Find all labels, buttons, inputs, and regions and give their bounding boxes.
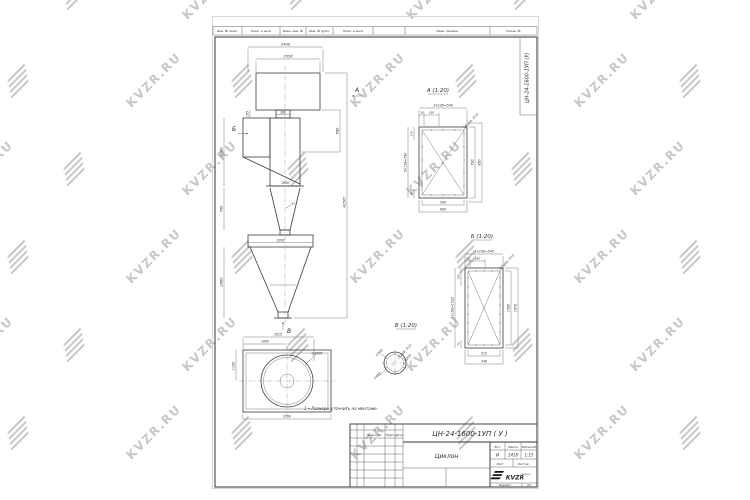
dim-label: 790 xyxy=(471,159,475,165)
dim-label: 2400 xyxy=(281,43,291,47)
dim-label: 1065 xyxy=(261,340,269,344)
tb-name: Циклон xyxy=(435,453,459,460)
front-view: 2400 2056 380 165 2160 700 2060 580 4150… xyxy=(220,43,364,336)
dim-label: 500 xyxy=(440,201,446,205)
dim-label: 4150* xyxy=(343,196,347,207)
dia-callout: ∅335 xyxy=(403,353,412,362)
dim-label: 580 xyxy=(336,127,340,135)
kvzr-watermark-logo-icon xyxy=(679,63,700,98)
tb-mass-h: Масса xyxy=(508,445,518,449)
note-ref: 1* xyxy=(291,202,295,206)
kvzr-watermark-text: KVZR.RU xyxy=(572,402,632,462)
drawing-frame xyxy=(215,37,537,487)
dim-label: 180 xyxy=(429,111,434,115)
strip-cell: Инв. № подл. xyxy=(217,29,238,33)
view-v-title: В (1:20) xyxy=(395,323,417,329)
dim-label: 700 xyxy=(220,205,224,213)
dim-label: 2200 xyxy=(283,415,291,419)
kvzr-watermark-logo-icon xyxy=(63,327,84,362)
section-b-title: Б (1:20) xyxy=(471,234,493,240)
format-label: Формат xyxy=(499,483,511,487)
strip-cell: Перв. примен. xyxy=(436,29,459,33)
kvzr-watermark-logo-icon xyxy=(63,151,84,186)
dia-callout: ∅395 xyxy=(375,348,384,357)
dim-label: 30 xyxy=(420,111,424,115)
view-v: В (1:20) 6 отв. ∅12 ∅395 ∅335 ∅450 xyxy=(373,323,417,380)
dim-label: 380 xyxy=(280,111,286,115)
dim-label: 540 xyxy=(481,360,487,364)
dim-label: 3×180=540 xyxy=(474,250,494,254)
tb-lit-h: Лит. xyxy=(493,445,501,449)
kvzr-watermark-logo-icon xyxy=(7,63,28,98)
tb-sheet: Лист xyxy=(495,462,504,466)
dim-label: 3×180=540 xyxy=(433,104,453,108)
kvzr-watermark-logo-icon xyxy=(679,239,700,274)
kvzr-watermark-text: KVZR.RU xyxy=(628,138,688,198)
kvzr-logo-icon xyxy=(491,471,504,479)
corner-designation: ЦН-24-1600-1УП (У) xyxy=(525,53,531,104)
strip-cell: Взам. инв. № xyxy=(283,29,303,33)
kvzr-watermark-text: KVZR.RU xyxy=(124,402,184,462)
strip-cell: Инв. № дубл. xyxy=(309,29,330,33)
dim-label: 180 xyxy=(475,257,480,261)
dia-callout: ∅1600 xyxy=(312,352,323,356)
tb-scale-v: 1:15 xyxy=(525,453,534,458)
section-mark-a: А xyxy=(354,87,359,94)
dim-label: 512 xyxy=(481,352,487,356)
col-doc: № докум. xyxy=(366,433,382,437)
tb-sheets: Листов xyxy=(516,462,528,466)
col-date: Дата xyxy=(394,433,403,437)
kvzr-site: kvzr.ru xyxy=(522,472,531,476)
dim-label: 850 xyxy=(478,159,482,165)
dim-label: 2200 xyxy=(276,239,284,243)
kvzr-watermark-text: KVZR.RU xyxy=(628,0,688,22)
kvzr-watermark-logo-icon xyxy=(679,415,700,450)
kvzr-watermark-text: KVZR.RU xyxy=(572,226,632,286)
kvzr-watermark-logo-icon xyxy=(7,415,28,450)
kvzr-watermark-logo-icon xyxy=(63,0,84,11)
dim-label: 2056 xyxy=(283,55,293,59)
dim-label: 8×190=1520 xyxy=(451,297,455,319)
dim-label: 30 xyxy=(410,192,414,196)
dim-label: 1100 xyxy=(232,362,236,370)
format-value: А3 xyxy=(526,483,531,487)
title-block: № докум. Подп. Дата ЦН-24-1600-1УП ( У )… xyxy=(350,424,537,487)
tb-designation: ЦН-24-1600-1УП ( У ) xyxy=(432,430,508,438)
kvzr-watermark-text: KVZR.RU xyxy=(0,138,16,198)
dia-callout: ∅450 xyxy=(373,371,382,380)
drawing-note: 1 • Размеры уточнить на монтаже. xyxy=(304,406,378,411)
top-strip: Инв. № подл. Подп. и дата Взам. инв. № И… xyxy=(213,27,537,36)
section-a: А (1:20) 3×180=540 30 180 16 отв. ∅13 5×… xyxy=(404,88,483,212)
holes-note: 16 отв. ∅13 xyxy=(462,112,479,129)
dim-label: 170 xyxy=(410,131,414,136)
tb-scale-h: Масштаб xyxy=(522,445,536,449)
col-sign: Подп. xyxy=(385,433,394,437)
dim-label: 1615 xyxy=(274,333,282,337)
kvzr-watermark-logo-icon xyxy=(511,0,532,11)
dim-label: 190 xyxy=(457,274,461,279)
strip-cell: Справ. № xyxy=(506,29,521,33)
section-a-title: А (1:20) xyxy=(426,88,449,94)
tb-mass-v: 1418 xyxy=(508,453,519,458)
section-mark-b: Б xyxy=(232,126,236,133)
dim-label: 600 xyxy=(440,208,446,212)
dim-label: 70 xyxy=(457,342,461,346)
kvzr-watermark-text: KVZR.RU xyxy=(572,50,632,110)
kvzr-watermark-text: KVZR.RU xyxy=(124,50,184,110)
dim-label: 5×158=790 xyxy=(404,153,408,173)
holes-note: 22 отв. ∅13 xyxy=(498,253,515,270)
strip-cell: Подп. и дата xyxy=(251,29,272,33)
strip-cell: Подп. и дата xyxy=(343,29,364,33)
scanned-drawing-page: KVZR.RUKVZR.RUKVZR.RUKVZR.RUKVZR.RUKVZR.… xyxy=(0,0,750,500)
section-b: Б (1:20) 3×180=540 30 180 22 отв. ∅13 8×… xyxy=(451,234,519,364)
dim-label: 165 xyxy=(246,111,250,117)
kvzr-watermark-logo-icon xyxy=(7,239,28,274)
corner-designation-cell: ЦН-24-1600-1УП (У) xyxy=(520,37,537,115)
kvzr-watermark-text: KVZR.RU xyxy=(628,314,688,374)
kvzr-watermark-text: KVZR.RU xyxy=(0,0,16,22)
dim-label: 1590 xyxy=(507,304,511,312)
dim-label: 2160 xyxy=(220,147,224,157)
tb-lit-v: И xyxy=(496,453,499,458)
kvzr-watermark-text: KVZR.RU xyxy=(0,314,16,374)
dim-label: 2060 xyxy=(220,277,224,287)
view-mark-v: В xyxy=(287,328,291,335)
dim-label: 30 xyxy=(466,257,470,261)
kvzr-watermark-text: KVZR.RU xyxy=(124,226,184,286)
dim-label: 1670 xyxy=(514,304,518,312)
kvzr-watermark-logo-icon xyxy=(287,0,308,11)
drawing-sheet: Инв. № подл. Подп. и дата Взам. инв. № И… xyxy=(212,16,539,489)
dim-label: 1630 xyxy=(281,181,289,185)
